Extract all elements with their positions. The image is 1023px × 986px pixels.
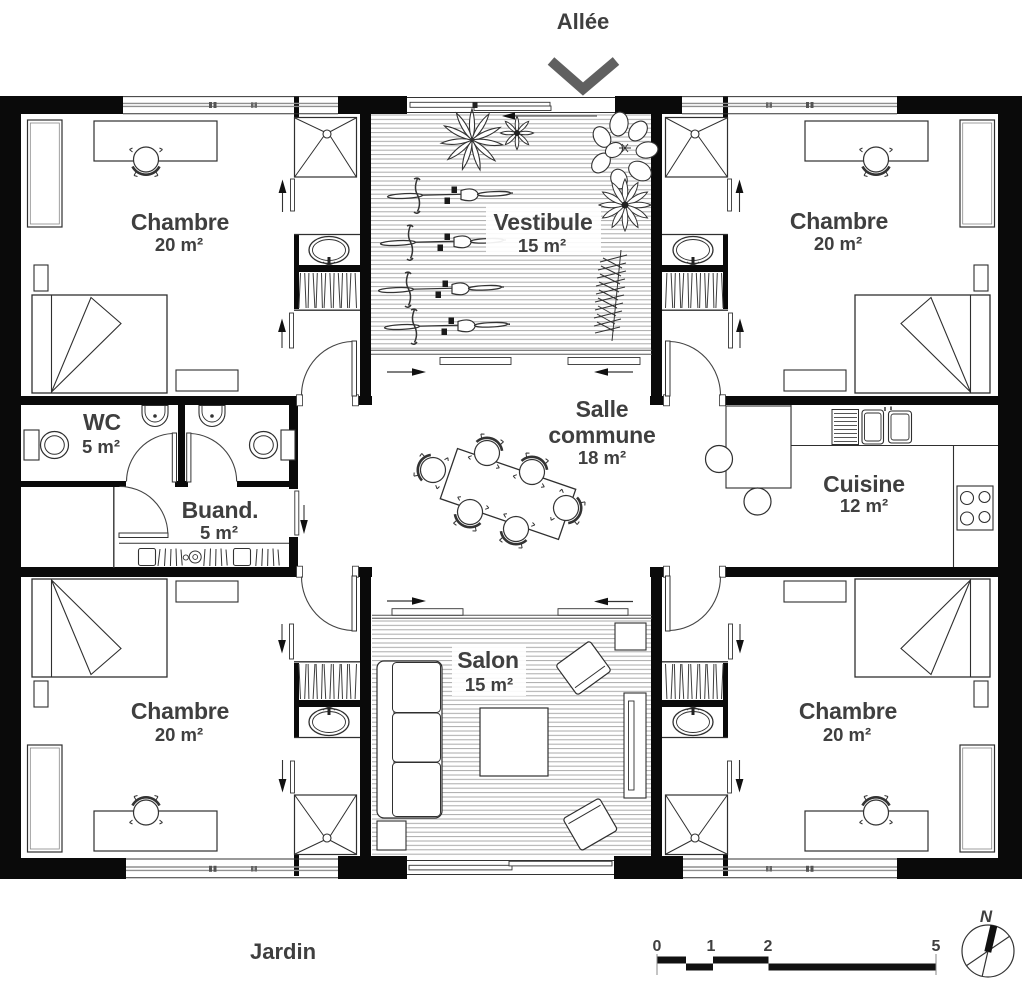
svg-text:Buand.: Buand. — [182, 497, 259, 523]
svg-text:Jardin: Jardin — [250, 939, 316, 964]
svg-text:18 m²: 18 m² — [578, 447, 626, 468]
svg-text:Chambre: Chambre — [790, 208, 888, 234]
svg-text:1: 1 — [707, 938, 716, 955]
svg-text:Cuisine: Cuisine — [823, 471, 905, 497]
svg-text:20 m²: 20 m² — [814, 233, 862, 254]
svg-text:Salle: Salle — [576, 396, 629, 422]
svg-text:15 m²: 15 m² — [465, 674, 513, 695]
svg-text:Vestibule: Vestibule — [493, 209, 592, 235]
svg-text:Allée: Allée — [557, 9, 610, 34]
svg-text:Chambre: Chambre — [799, 698, 897, 724]
svg-text:N: N — [980, 907, 993, 926]
svg-text:20 m²: 20 m² — [155, 724, 203, 745]
svg-text:5 m²: 5 m² — [200, 522, 238, 543]
svg-text:15 m²: 15 m² — [518, 235, 566, 256]
svg-text:Chambre: Chambre — [131, 698, 229, 724]
svg-text:5: 5 — [932, 938, 941, 955]
svg-text:2: 2 — [764, 938, 773, 955]
svg-text:commune: commune — [548, 422, 655, 448]
svg-text:WC: WC — [83, 409, 121, 435]
svg-text:20 m²: 20 m² — [823, 724, 871, 745]
svg-text:12 m²: 12 m² — [840, 495, 888, 516]
svg-text:20 m²: 20 m² — [155, 234, 203, 255]
svg-text:Salon: Salon — [457, 647, 519, 673]
svg-text:Chambre: Chambre — [131, 209, 229, 235]
svg-text:5 m²: 5 m² — [82, 436, 120, 457]
svg-text:0: 0 — [653, 938, 662, 955]
